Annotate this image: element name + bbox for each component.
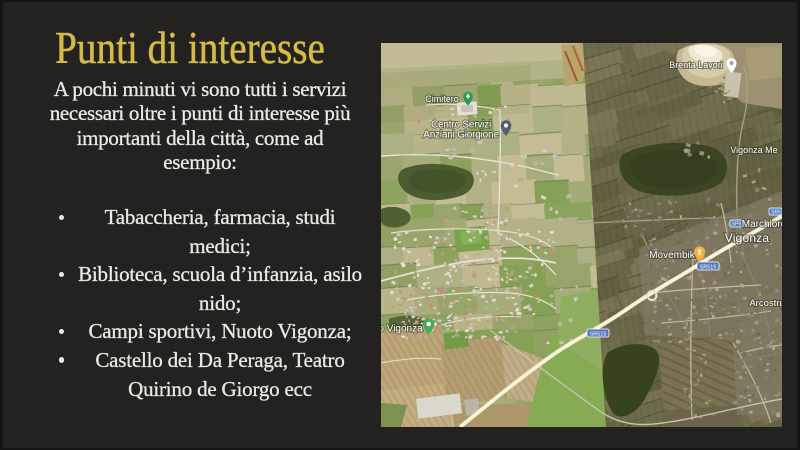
svg-text:Vigonza: Vigonza [725,231,770,245]
svg-text:SR5: SR5 [771,210,781,216]
svg-text:SR515: SR515 [700,264,717,270]
svg-text:Movembik: Movembik [649,250,696,261]
svg-text:Arcostru: Arcostru [749,298,782,309]
svg-text:Vigonza Me: Vigonza Me [730,145,777,155]
svg-text:o Vigonza: o Vigonza [381,324,423,335]
svg-text:SR515: SR515 [590,331,607,337]
svg-text:Anziani Giorgione: Anziani Giorgione [423,130,499,141]
svg-text:Cimitero: Cimitero [425,94,459,104]
svg-text:Marchioro: Marchioro [742,219,782,230]
svg-text:SP9: SP9 [732,222,742,228]
svg-text:Brenta Lavori: Brenta Lavori [669,60,723,70]
